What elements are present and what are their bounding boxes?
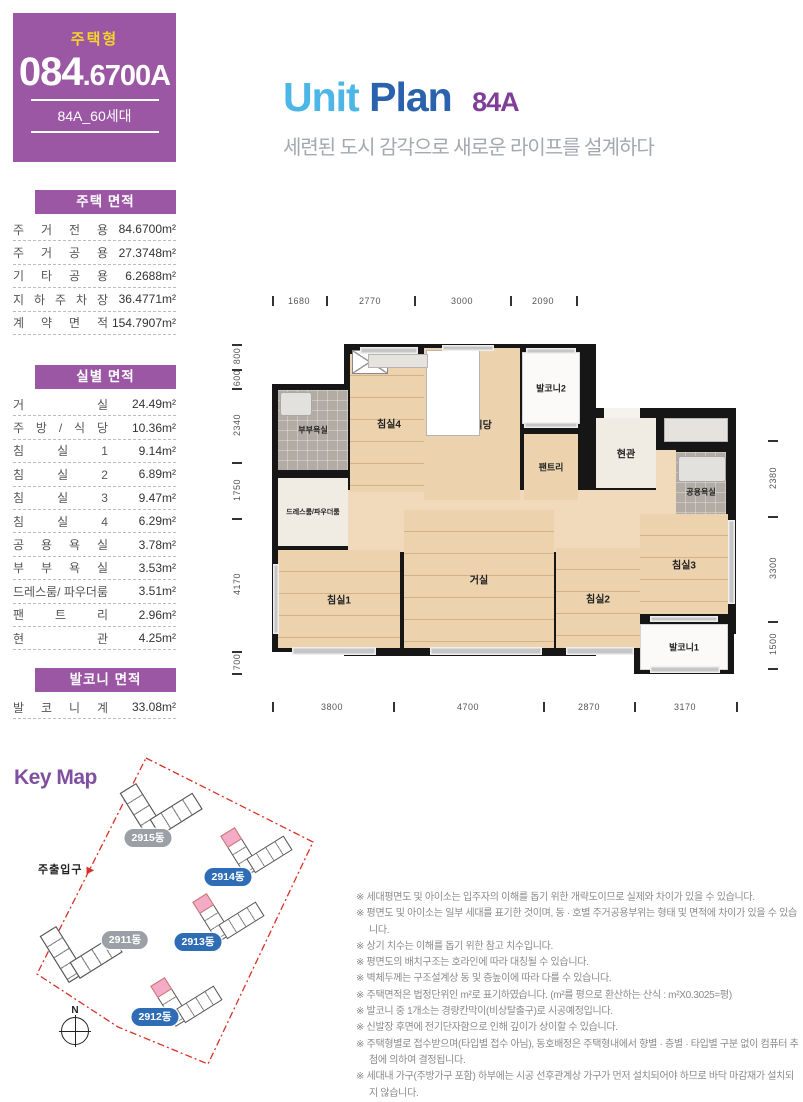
area-row-value: 27.3748m²: [119, 246, 176, 260]
area-row-value: 3.53m²: [139, 561, 176, 575]
room-label-bath-common: 공용욕실: [686, 487, 715, 498]
plan-closet: [664, 418, 728, 442]
dimension-label: 2090: [532, 296, 554, 306]
area-row-label: 침 실 2: [13, 466, 108, 483]
area-row: 주 방 / 식 당10.36m²: [13, 416, 176, 439]
plan-window: [430, 647, 542, 655]
plan-window: [442, 345, 494, 351]
dimension-tick: [232, 651, 242, 653]
entrance-text: 주출입구: [38, 864, 82, 876]
entrance-arrow-icon: ▶: [87, 865, 95, 876]
plan-window: [524, 422, 578, 428]
dimension-label: 4170: [232, 573, 242, 595]
dimension-label: 1500: [768, 633, 778, 655]
note-item: ※ 벽체두께는 구조설계상 동 및 층높이에 따라 다를 수 있습니다.: [356, 971, 802, 987]
area-row: 발 코 니 계33.08m²: [13, 696, 176, 719]
badge-code-tail: .6700A: [83, 60, 171, 92]
dimension-tick: [768, 621, 778, 623]
unit-type-badge: 주택형 084.6700A 84A_60세대: [13, 13, 176, 162]
note-item: ※ 세대내 가구(주방가구 포함) 하부에는 시공 선후관계상 가구가 먼저 설…: [356, 1069, 802, 1102]
area-row-label: 지 하 주 차 장: [13, 291, 108, 308]
area-row: 기 타 공 용6.2688m²: [13, 265, 176, 288]
area-row-value: 9.14m²: [139, 444, 176, 458]
note-item: ※ 신발장 후면에 전기단자함으로 인해 깊이가 상이할 수 있습니다.: [356, 1020, 802, 1036]
area-row-value: 154.7907m²: [112, 316, 176, 330]
plan-window: [360, 347, 418, 354]
badge-unit-code: 084.6700A: [13, 51, 176, 93]
plan-closet: [368, 354, 428, 368]
dimension-tick: [272, 296, 274, 306]
compass-dial: [61, 1017, 89, 1045]
title-unit-code: 84A: [472, 87, 519, 117]
floor-plan: 침실4주방/식당발코니2팬트리현관공용욕실부부욕실드레스룸/파우더룸침실1거실침…: [272, 344, 736, 676]
dimension-label: 600: [232, 370, 242, 387]
dimension-row-top: 1680277030002090: [272, 294, 576, 308]
plan-window: [273, 564, 279, 634]
dimension-tick: [634, 702, 636, 712]
plan-window: [526, 348, 576, 354]
badge-divider-bottom: [31, 131, 159, 133]
dimension-tick: [768, 668, 778, 670]
area-row: 팬 트 리2.96m²: [13, 604, 176, 627]
area-row-value: 10.36m²: [132, 421, 176, 435]
area-row-label: 발 코 니 계: [13, 699, 108, 716]
area-row: 침 실 19.14m²: [13, 440, 176, 463]
area-row-label: 부 부 욕 실: [13, 559, 108, 576]
note-item: ※ 세대평면도 및 아이소는 입주자의 이해를 돕기 위한 개략도이므로 실제와…: [356, 890, 802, 906]
room-label-balcony1: 발코니1: [669, 641, 699, 654]
dimension-label: 3300: [768, 557, 778, 579]
page-title: Unit Plan 84A: [283, 74, 519, 121]
room-label-pantry: 팬트리: [539, 461, 564, 474]
dimension-tick: [393, 702, 395, 712]
title-word-plan: Plan: [369, 74, 452, 120]
building-label: 2915동: [124, 829, 171, 847]
balcony-area-table: 발코니 면적 발 코 니 계33.08m²: [13, 668, 176, 719]
area-row-label: 침 실 3: [13, 489, 108, 506]
area-row: 계 약 면 적154.7907m²: [13, 312, 176, 335]
building-label: 2912동: [131, 1008, 178, 1026]
note-item: ※ 발코니 중 1개소는 경량칸막이(비상탈출구)로 시공예정입니다.: [356, 1004, 802, 1020]
table-body: 거 실24.49m²주 방 / 식 당10.36m²침 실 19.14m²침 실…: [13, 393, 176, 650]
dimension-tick: [543, 702, 545, 712]
brochure-page: { "badge": { "type_label": "주택형", "code_…: [0, 0, 803, 1074]
room-label-dressroom-powder: 드레스룸/파우더룸: [286, 507, 339, 517]
dimension-tick: [414, 296, 416, 306]
dimension-tick: [768, 440, 778, 442]
room-label-bedroom2: 침실2: [586, 591, 610, 606]
area-row-label: 계 약 면 적: [13, 314, 108, 331]
plan-window: [292, 647, 376, 655]
note-item: ※ 상기 치수는 이해를 돕기 위한 참고 치수입니다.: [356, 939, 802, 955]
dimension-label: 3000: [451, 296, 473, 306]
title-word-unit: Unit: [283, 74, 359, 120]
dimension-label: 1750: [232, 479, 242, 501]
note-item: ※ 평면도의 배치구조는 호라인에 따라 대칭될 수 있습니다.: [356, 955, 802, 971]
plan-counter: [426, 350, 480, 436]
dimension-tick: [232, 462, 242, 464]
dimension-label: 2770: [359, 296, 381, 306]
dimension-tick: [510, 296, 512, 306]
note-item: ※ 주택면적은 법정단위인 m²로 표기하였습니다. (m²를 평으로 환산하는…: [356, 988, 802, 1004]
dimension-label: 3800: [321, 702, 343, 712]
badge-code-main: 084: [19, 50, 83, 94]
room-label-entry: 현관: [617, 446, 635, 461]
area-row-value: 36.4771m²: [119, 292, 176, 306]
room-area-table: 실별 면적 거 실24.49m²주 방 / 식 당10.36m²침 실 19.1…: [13, 365, 176, 650]
main-entrance-label: 주출입구 ▶: [38, 861, 94, 877]
area-row-value: 84.6700m²: [119, 222, 176, 236]
note-item: ※ 평면도 및 아이소는 일부 세대를 표기한 것이며, 동 · 호별 주거공용…: [356, 906, 802, 939]
dimension-label: 800: [232, 348, 242, 365]
dimension-label: 2380: [768, 467, 778, 489]
plan-tub: [280, 392, 312, 416]
building-label: 2911동: [102, 931, 148, 949]
area-row-value: 6.2688m²: [125, 269, 176, 283]
area-row-label: 공 용 욕 실: [13, 536, 108, 553]
dimension-label: 2340: [232, 414, 242, 436]
area-row-label: 거 실: [13, 396, 108, 413]
area-row: 침 실 26.89m²: [13, 463, 176, 486]
table-header: 실별 면적: [35, 365, 176, 389]
note-item: ※ 주택형별로 접수받으며(타입별 접수 아님), 동호배정은 주택형내에서 향…: [356, 1037, 802, 1070]
area-row-label: 주 방 / 식 당: [13, 419, 108, 436]
area-row-label: 침 실 1: [13, 442, 108, 459]
table-header: 발코니 면적: [35, 668, 176, 692]
building-label: 2913동: [174, 933, 221, 951]
room-label-living: 거실: [470, 572, 488, 587]
dimension-tick: [576, 296, 578, 306]
area-row-label: 팬 트 리: [13, 606, 108, 623]
dimension-tick: [768, 516, 778, 518]
plan-window: [650, 666, 720, 673]
dimension-label: 1680: [288, 296, 310, 306]
area-row-value: 24.49m²: [132, 397, 176, 411]
dimension-label: 700: [232, 654, 242, 671]
badge-type-label: 주택형: [13, 28, 176, 49]
dimension-tick: [272, 702, 274, 712]
dimension-tick: [232, 518, 242, 520]
dimension-tick: [232, 344, 242, 346]
notes-list: ※ 세대평면도 및 아이소는 입주자의 이해를 돕기 위한 개략도이므로 실제와…: [356, 890, 802, 1102]
plan-opening: [604, 408, 640, 418]
area-row: 침 실 39.47m²: [13, 487, 176, 510]
dimension-tick: [736, 702, 738, 712]
badge-units-count: 84A_60세대: [13, 101, 176, 126]
area-row: 지 하 주 차 장36.4771m²: [13, 288, 176, 311]
table-body: 발 코 니 계33.08m²: [13, 696, 176, 719]
room-label-balcony2: 발코니2: [536, 382, 566, 395]
room-label-bedroom3: 침실3: [672, 557, 696, 572]
plan-window: [728, 520, 735, 604]
area-row-value: 9.47m²: [139, 491, 176, 505]
compass-icon: N: [58, 1005, 92, 1045]
room-label-bedroom4: 침실4: [377, 416, 401, 431]
dimension-column-left: 800600234017504170700: [230, 344, 244, 676]
dimension-label: 4700: [457, 702, 479, 712]
plan-window: [566, 647, 634, 655]
area-row-value: 6.29m²: [139, 514, 176, 528]
area-row: 부 부 욕 실3.53m²: [13, 557, 176, 580]
building-label: 2914동: [204, 868, 251, 886]
table-body: 주 거 전 용84.6700m²주 거 공 용27.3748m²기 타 공 용6…: [13, 218, 176, 335]
area-row-label: 주 거 전 용: [13, 221, 108, 238]
area-row-label: 기 타 공 용: [13, 267, 108, 284]
plan-tub: [678, 456, 726, 482]
area-row: 침 실 46.29m²: [13, 510, 176, 533]
plan-window: [650, 616, 718, 622]
area-row: 주 거 전 용84.6700m²: [13, 218, 176, 241]
area-row-label: 드레스룸/ 파우더룸: [13, 583, 108, 600]
dimension-row-bottom: 3800470028703170: [272, 700, 736, 714]
dimension-tick: [232, 673, 242, 675]
dimension-column-right: 238033001500: [766, 344, 780, 676]
area-row: 주 거 공 용27.3748m²: [13, 241, 176, 264]
area-row-label: 침 실 4: [13, 513, 108, 530]
room-label-bedroom1: 침실1: [327, 592, 351, 607]
area-row-value: 2.96m²: [139, 608, 176, 622]
dimension-label: 3170: [674, 702, 696, 712]
area-row: 거 실24.49m²: [13, 393, 176, 416]
dimension-tick: [232, 388, 242, 390]
dimension-tick: [232, 369, 242, 371]
area-row: 현 관4.25m²: [13, 627, 176, 650]
dimension-tick: [326, 296, 328, 306]
area-row: 드레스룸/ 파우더룸3.51m²: [13, 580, 176, 603]
table-header: 주택 면적: [35, 190, 176, 214]
area-row-value: 33.08m²: [132, 700, 176, 714]
area-row: 공 용 욕 실3.78m²: [13, 533, 176, 556]
page-subtitle: 세련된 도시 감각으로 새로운 라이프를 설계하다: [283, 131, 654, 160]
area-row-value: 3.78m²: [139, 538, 176, 552]
room-label-bath-couple: 부부욕실: [298, 425, 327, 436]
area-row-label: 주 거 공 용: [13, 244, 108, 261]
area-row-label: 현 관: [13, 630, 108, 647]
dimension-label: 2870: [578, 702, 600, 712]
area-row-value: 4.25m²: [139, 631, 176, 645]
area-row-value: 3.51m²: [139, 584, 176, 598]
housing-area-table: 주택 면적 주 거 전 용84.6700m²주 거 공 용27.3748m²기 …: [13, 190, 176, 335]
area-row-value: 6.89m²: [139, 467, 176, 481]
